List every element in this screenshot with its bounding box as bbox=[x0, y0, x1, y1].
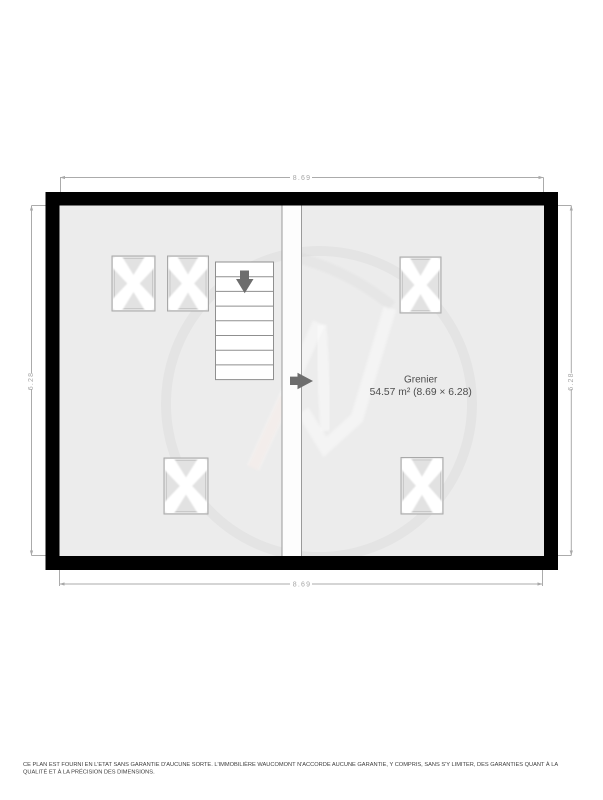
svg-text:6.28: 6.28 bbox=[568, 372, 575, 390]
svg-text:8.69: 8.69 bbox=[293, 582, 311, 589]
svg-text:CE PLAN EST FOURNI EN L'ETAT S: CE PLAN EST FOURNI EN L'ETAT SANS GARANT… bbox=[23, 761, 558, 768]
svg-text:54.57 m² (8.69 × 6.28): 54.57 m² (8.69 × 6.28) bbox=[370, 387, 472, 398]
svg-text:Grenier: Grenier bbox=[404, 375, 438, 386]
svg-text:8.69: 8.69 bbox=[293, 175, 311, 182]
svg-text:QUALITÉ ET À LA PRÉCISION DES: QUALITÉ ET À LA PRÉCISION DES DIMENSIONS… bbox=[23, 769, 155, 776]
svg-text:6.28: 6.28 bbox=[28, 372, 35, 390]
